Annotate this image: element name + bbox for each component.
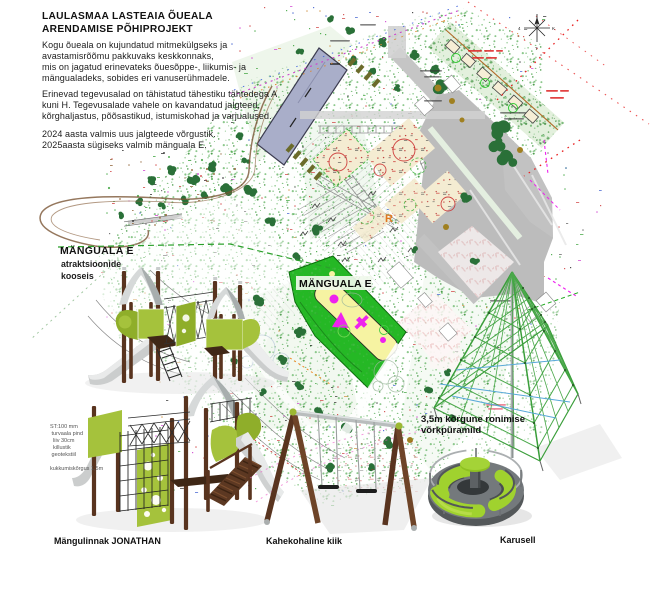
svg-text:K: K	[552, 26, 555, 31]
svg-text:R: R	[385, 213, 393, 225]
svg-text:MÄNGUALA E: MÄNGUALA E	[299, 277, 372, 290]
svg-text:4: 4	[518, 26, 521, 31]
